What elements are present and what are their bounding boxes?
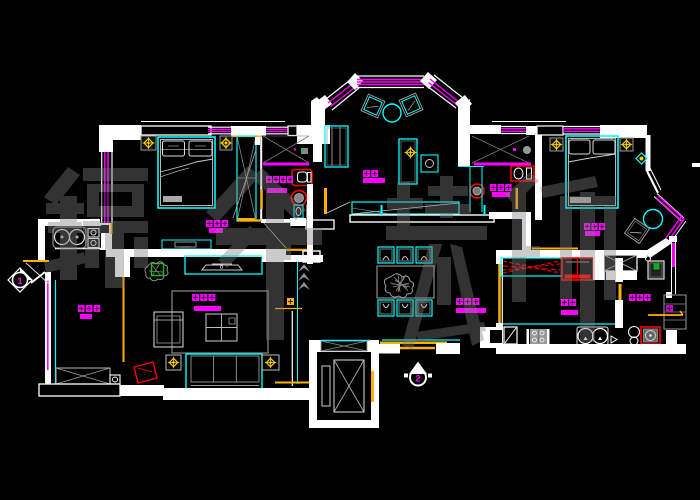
svg-text:2: 2 <box>415 374 420 385</box>
svg-text:1: 1 <box>17 276 22 286</box>
